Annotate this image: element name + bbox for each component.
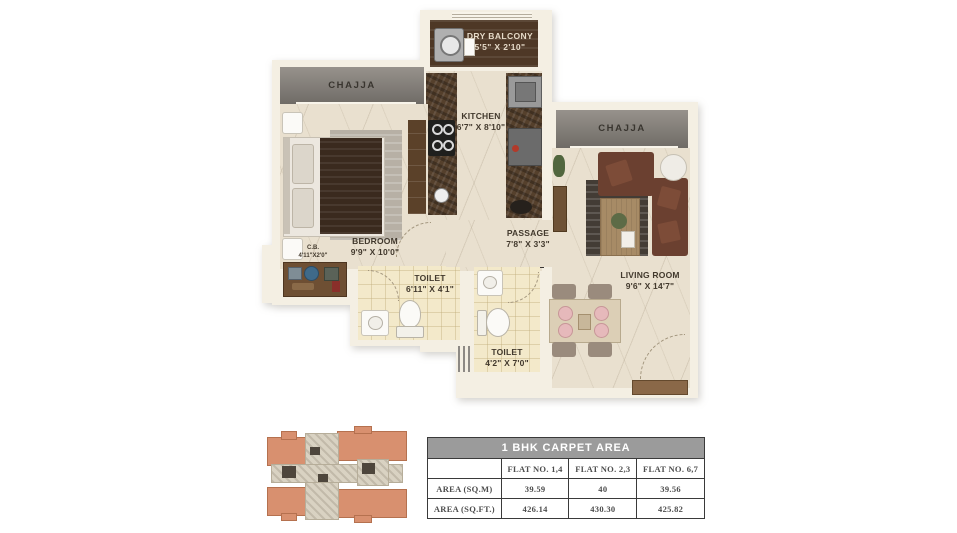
- window-sill-balcony-icon: [452, 12, 532, 20]
- room-dims: 4'11"X2'0": [299, 253, 328, 259]
- label-chajja-right: CHAJJA: [598, 123, 646, 135]
- cb-item-icon: [324, 267, 339, 281]
- keyplan-wing-tl: [267, 437, 309, 466]
- keyplan-wing-bl: [267, 487, 309, 516]
- keyplan-lift-icon: [318, 474, 328, 482]
- cell-value: 430.30: [569, 499, 637, 519]
- keyplan-stair-icon: [282, 466, 296, 478]
- table-row-sqft: AREA (SQ.FT.) 426.14 430.30 425.82: [428, 499, 705, 519]
- pillow-icon: [292, 144, 314, 184]
- plate-icon: [558, 323, 573, 338]
- room-dims: 6'11" X 4'1": [406, 284, 454, 294]
- label-living-room: LIVING ROOM 9'6" X 14'7": [620, 270, 679, 292]
- col-header-blank: [428, 459, 502, 479]
- plate-icon: [594, 323, 609, 338]
- keyplan-wing-notch: [354, 426, 372, 434]
- sofa-cushion-icon: [657, 186, 681, 210]
- cb-item-icon: [292, 283, 314, 290]
- toilet-bowl-icon: [399, 300, 421, 328]
- room-name: KITCHEN: [461, 111, 500, 121]
- sink-basin-icon: [515, 82, 536, 102]
- cb-item-icon: [304, 266, 319, 281]
- sink-icon: [361, 310, 389, 336]
- cell-value: 40: [569, 479, 637, 499]
- washing-machine-icon: [434, 28, 464, 62]
- row-label: AREA (SQ.FT.): [428, 499, 502, 519]
- room-name: C.B.: [307, 245, 319, 251]
- cb-item-icon: [288, 267, 302, 280]
- dining-chair-icon: [588, 342, 612, 357]
- dining-chair-icon: [588, 284, 612, 299]
- cb-cabinet: [283, 262, 347, 297]
- room-dims: 7'8" X 3'3": [506, 239, 550, 249]
- entrance-threshold-icon: [632, 380, 688, 395]
- sofa-two-seater: [598, 152, 654, 196]
- stove-icon: [428, 120, 455, 156]
- wall-bump-cb: [262, 245, 282, 303]
- pillow-icon: [292, 188, 314, 228]
- keyplan-wing-notch: [281, 513, 297, 521]
- room-dims: 6'7" X 8'10": [457, 122, 506, 132]
- table-title-row: 1 BHK CARPET AREA: [428, 438, 705, 459]
- keyplan-stair-icon: [362, 463, 375, 474]
- kitchen-sink-round-icon: [434, 188, 449, 203]
- duct-icon: [458, 346, 470, 372]
- label-cb: C.B. 4'11"X2'0": [299, 245, 328, 261]
- room-name: BEDROOM: [352, 236, 398, 246]
- col-header-flat-14: FLAT NO. 1,4: [501, 459, 569, 479]
- cell-value: 39.56: [637, 479, 705, 499]
- label-passage: PASSAGE 7'8" X 3'3": [506, 228, 550, 250]
- cell-value: 425.82: [637, 499, 705, 519]
- headboard-icon: [284, 138, 290, 234]
- magazine-icon: [621, 231, 635, 248]
- sink-basin-icon: [483, 276, 497, 289]
- room-name: TOILET: [414, 273, 445, 283]
- label-bedroom: BEDROOM 9'9" X 10'0": [351, 236, 400, 258]
- nightstand-top-icon: [282, 112, 303, 134]
- room-name: PASSAGE: [507, 228, 549, 238]
- keyplan-wing-br: [337, 489, 407, 518]
- room-dims: 5'5" X 2'10": [475, 42, 526, 52]
- sink-basin-icon: [368, 316, 383, 330]
- toilet-tank-icon: [396, 326, 424, 338]
- dining-chair-icon: [552, 342, 576, 357]
- plant-icon: [611, 213, 627, 229]
- table-row-sqm: AREA (SQ.M) 39.59 40 39.56: [428, 479, 705, 499]
- sofa-three-seater: [652, 178, 688, 256]
- keyplan-wing-notch: [354, 515, 372, 523]
- sink-icon: [477, 270, 503, 296]
- vegetables-icon: [512, 145, 519, 152]
- room-name: CHAJJA: [328, 80, 376, 91]
- plate-icon: [594, 306, 609, 321]
- cb-item-icon: [332, 281, 340, 292]
- room-name: CHAJJA: [598, 123, 646, 134]
- dining-chair-icon: [552, 284, 576, 299]
- blanket-icon: [320, 138, 382, 234]
- room-dims: 9'6" X 14'7": [626, 281, 675, 291]
- pot-icon: [510, 200, 532, 214]
- plant-icon: [553, 155, 565, 177]
- burner-icon: [443, 140, 454, 151]
- label-kitchen: KITCHEN 6'7" X 8'10": [457, 111, 506, 133]
- room-dims: 4'2" X 7'0": [485, 358, 529, 368]
- sofa-cushion-icon: [657, 220, 681, 244]
- room-dims: 9'9" X 10'0": [351, 247, 400, 257]
- room-name: TOILET: [491, 347, 522, 357]
- label-toilet2: TOILET 4'2" X 7'0": [485, 347, 529, 369]
- tv-unit-icon: [553, 186, 567, 232]
- cell-value: 39.59: [501, 479, 569, 499]
- sofa-cushion-icon: [605, 159, 633, 187]
- burner-icon: [443, 124, 454, 135]
- keyplan-lift-icon: [310, 447, 320, 455]
- wardrobe-icon: [408, 120, 426, 214]
- label-chajja-left: CHAJJA: [328, 80, 376, 92]
- coffee-table-icon: [600, 198, 640, 256]
- keyplan-wing-notch: [281, 431, 297, 440]
- keyplan-wing-tr: [337, 431, 407, 461]
- label-toilet1: TOILET 6'11" X 4'1": [406, 273, 454, 295]
- cell-value: 426.14: [501, 499, 569, 519]
- room-name: DRY BALCONY: [467, 31, 533, 41]
- table-header-row: FLAT NO. 1,4 FLAT NO. 2,3 FLAT NO. 6,7: [428, 459, 705, 479]
- side-table-icon: [660, 154, 687, 181]
- sink-unit-icon: [508, 76, 542, 108]
- dining-table: [549, 299, 621, 343]
- burner-icon: [432, 140, 443, 151]
- col-header-flat-67: FLAT NO. 6,7: [637, 459, 705, 479]
- burner-icon: [432, 124, 443, 135]
- table-title: 1 BHK CARPET AREA: [428, 438, 705, 459]
- toilet-bowl-icon: [486, 308, 510, 337]
- carpet-area-table: 1 BHK CARPET AREA FLAT NO. 1,4 FLAT NO. …: [427, 437, 705, 519]
- brochure-page: CHAJJA DRY BALCONY 5'5" X 2'10" KITCHEN …: [0, 0, 957, 533]
- label-dry-balcony: DRY BALCONY 5'5" X 2'10": [467, 31, 533, 53]
- col-header-flat-23: FLAT NO. 2,3: [569, 459, 637, 479]
- bed: [283, 137, 385, 237]
- table-centerpiece-icon: [578, 314, 591, 330]
- row-label: AREA (SQ.M): [428, 479, 502, 499]
- room-name: LIVING ROOM: [620, 270, 679, 280]
- plate-icon: [558, 306, 573, 321]
- washing-machine-door-icon: [440, 35, 461, 56]
